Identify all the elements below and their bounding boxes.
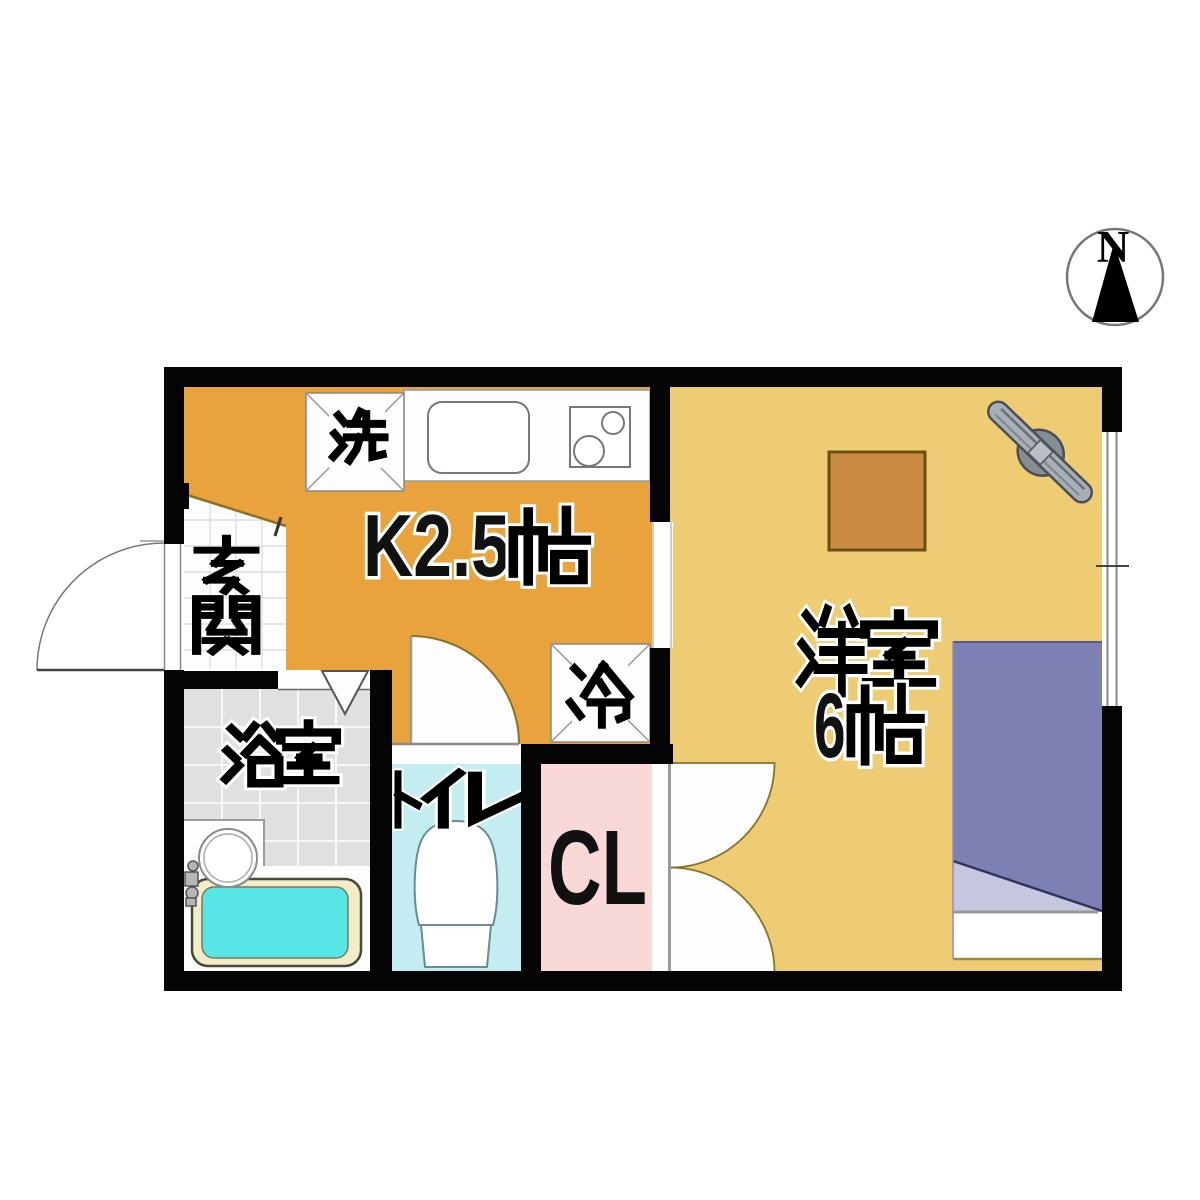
svg-text:CL: CL [548, 809, 647, 927]
svg-text:6: 6 [814, 675, 846, 777]
svg-text:N: N [1097, 222, 1130, 272]
svg-text:K2.5: K2.5 [363, 496, 510, 595]
